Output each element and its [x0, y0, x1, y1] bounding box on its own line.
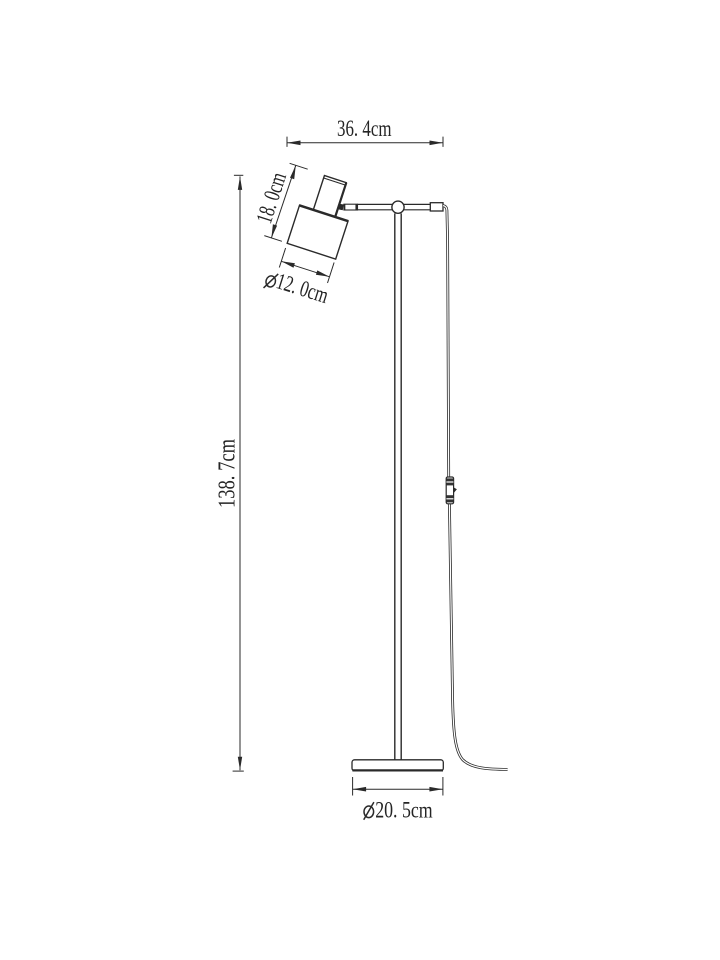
svg-text:36. 4cm: 36. 4cm [337, 116, 392, 142]
svg-text:20. 5cm: 20. 5cm [375, 798, 433, 823]
svg-text:138. 7cm: 138. 7cm [214, 439, 241, 508]
